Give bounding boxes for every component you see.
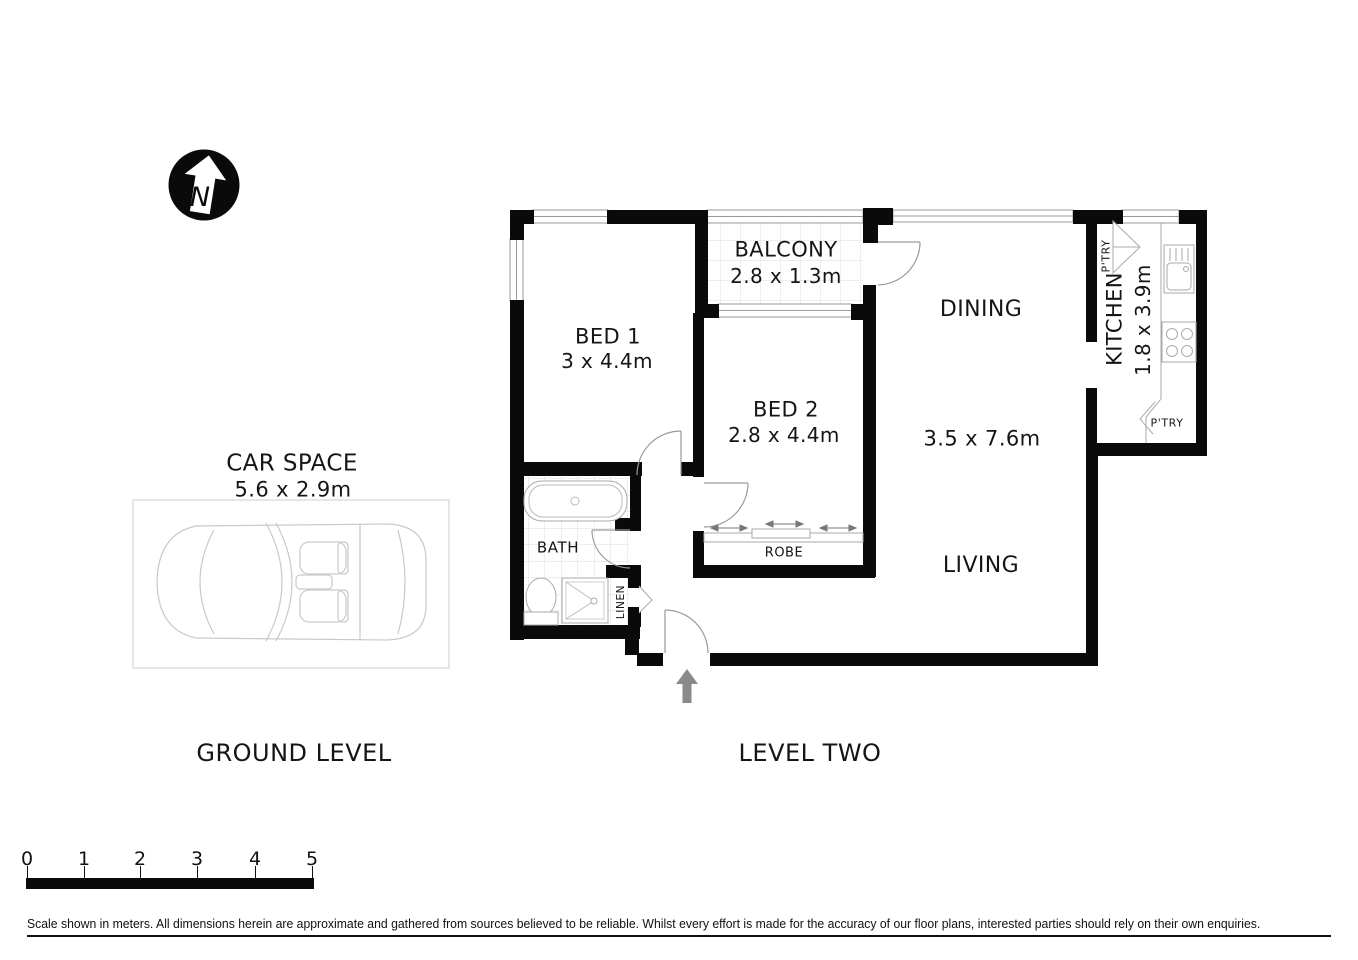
kitchen-dimensions: 1.8 x 3.9m bbox=[1133, 264, 1153, 376]
linen-label: LINEN bbox=[616, 585, 627, 619]
north-letter: N bbox=[190, 182, 210, 213]
bed2-dimensions: 2.8 x 4.4m bbox=[728, 425, 840, 445]
plan-canvas: N bbox=[0, 0, 1358, 960]
kitchen-top-window bbox=[1122, 210, 1179, 223]
scale-tick bbox=[255, 866, 257, 878]
living-label: LIVING bbox=[943, 555, 1019, 577]
ground-level-title: GROUND LEVEL bbox=[196, 741, 391, 765]
scale-tick bbox=[312, 866, 314, 878]
bed1-top-window bbox=[532, 210, 608, 223]
dining-top-window bbox=[893, 210, 1073, 222]
entry-door bbox=[665, 610, 708, 653]
sink bbox=[1164, 245, 1194, 293]
dining-label: DINING bbox=[940, 299, 1022, 321]
robe-sliding-doors bbox=[704, 521, 863, 542]
entry-arrow-icon bbox=[676, 669, 698, 703]
level-two-title: LEVEL TWO bbox=[739, 741, 882, 765]
bed1-label: BED 1 bbox=[575, 327, 641, 348]
disclaimer-rule bbox=[27, 935, 1331, 937]
floor-plan-page: { "colors": { "wall": "#0a0a0a", "thin_l… bbox=[0, 0, 1358, 960]
toilet bbox=[524, 578, 558, 625]
living-dining-dimensions: 3.5 x 7.6m bbox=[923, 429, 1040, 450]
bed1-left-window bbox=[510, 239, 523, 301]
linen-bifold-icon bbox=[639, 586, 652, 613]
scale-tick bbox=[84, 866, 86, 878]
north-arrow-icon: N bbox=[169, 150, 240, 221]
scale-tick bbox=[27, 866, 29, 878]
scale-tick bbox=[197, 866, 199, 878]
balcony-label: BALCONY bbox=[734, 240, 837, 261]
balcony-dimensions: 2.8 x 1.3m bbox=[730, 266, 842, 286]
robe-label: ROBE bbox=[765, 547, 803, 560]
kitchen-label: KITCHEN bbox=[1105, 272, 1126, 366]
bath-label: BATH bbox=[537, 541, 579, 556]
shower bbox=[562, 578, 608, 623]
disclaimer-text: Scale shown in meters. All dimensions he… bbox=[27, 916, 1260, 931]
bed2-door bbox=[704, 483, 748, 527]
bed1-dimensions: 3 x 4.4m bbox=[561, 351, 653, 371]
balcony-railing bbox=[707, 210, 863, 223]
car-illustration bbox=[157, 523, 426, 641]
bathtub bbox=[524, 481, 627, 521]
cooktop bbox=[1162, 322, 1196, 362]
bed2-balcony-window bbox=[718, 304, 852, 317]
bed1-door bbox=[637, 431, 681, 475]
bed2-label: BED 2 bbox=[753, 400, 819, 421]
scale-tick bbox=[140, 866, 142, 878]
car-space-label: CAR SPACE bbox=[226, 453, 358, 476]
pantry-top-label: P'TRY bbox=[1101, 239, 1112, 272]
car-space-dimensions: 5.6 x 2.9m bbox=[234, 480, 351, 501]
scale-bar-rule bbox=[26, 878, 314, 889]
balcony-dining-door bbox=[878, 242, 920, 285]
pantry-bottom-label: P'TRY bbox=[1150, 418, 1183, 429]
